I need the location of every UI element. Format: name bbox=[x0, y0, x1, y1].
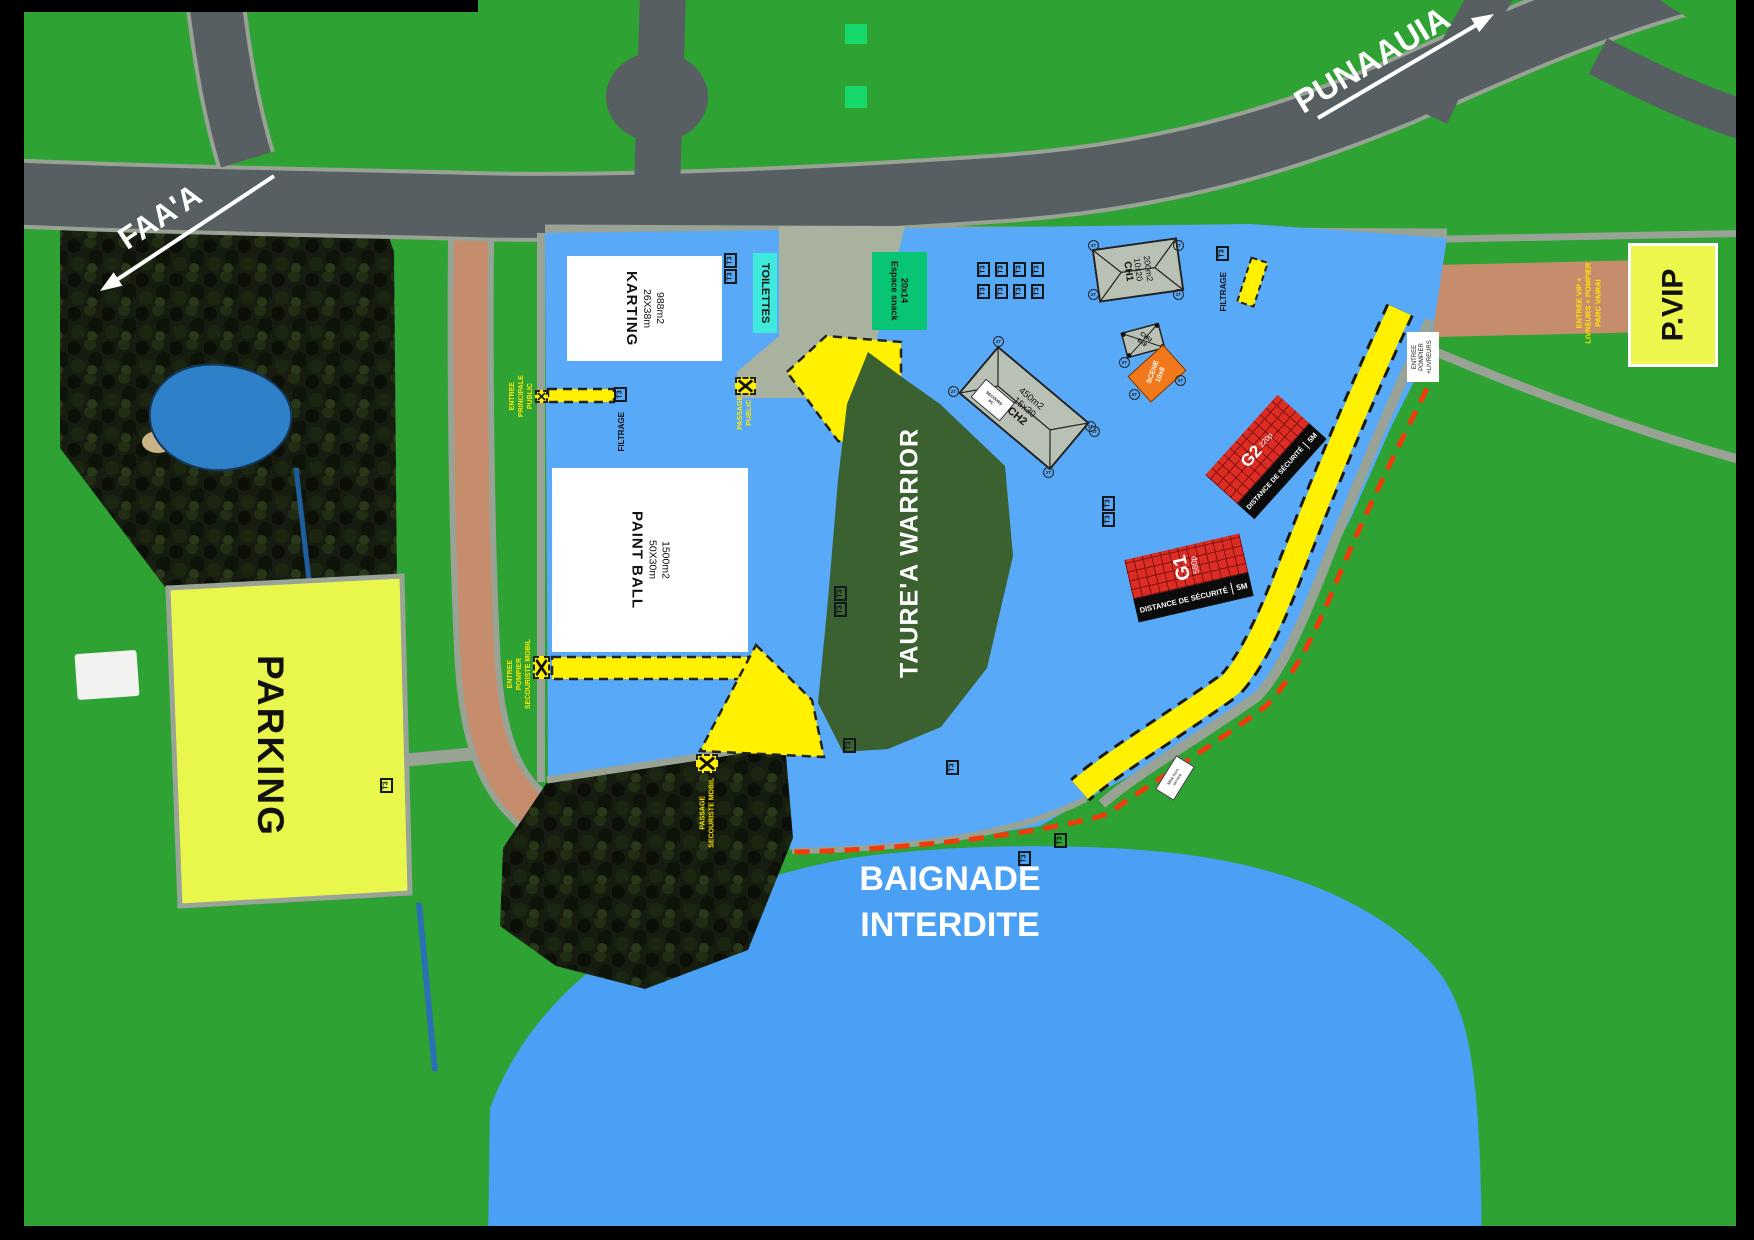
t3-marker: T3 bbox=[1013, 262, 1026, 277]
north-branch-road bbox=[214, 0, 246, 160]
no-swimming-label: BAIGNADE INTERDITE bbox=[859, 857, 1040, 949]
t2-corner-marker: 2T bbox=[1088, 240, 1099, 251]
g1-measure-line bbox=[1230, 583, 1234, 595]
vip-parking-area: P.VIP bbox=[1628, 243, 1718, 367]
t3-marker: T3 bbox=[995, 262, 1008, 277]
gate-passage-public bbox=[735, 377, 756, 395]
t3-marker: T3 bbox=[977, 262, 990, 277]
t3-marker: T3 bbox=[995, 284, 1008, 299]
sign-entree-pompier-livreurs: ENTREE POMPIER +LIVREURS bbox=[1407, 332, 1439, 382]
t3-marker: T3 bbox=[724, 253, 737, 268]
t3-marker: T3 bbox=[977, 284, 990, 299]
roundabout bbox=[606, 52, 708, 142]
toilets-area: TOILETTES bbox=[753, 253, 777, 333]
green-marker-2 bbox=[845, 86, 867, 108]
paintball-dims: 50X30m bbox=[647, 511, 659, 609]
no-swimming-line1: BAIGNADE bbox=[859, 857, 1040, 903]
gate-entree-principale bbox=[535, 390, 548, 403]
t2-corner-marker: 2T bbox=[1088, 289, 1099, 300]
t5-corner-marker: 5T bbox=[1129, 389, 1140, 400]
pond bbox=[150, 365, 291, 471]
building-white bbox=[74, 650, 139, 700]
t3-marker: T3 bbox=[614, 387, 627, 402]
t2-corner-marker: 2T bbox=[1173, 240, 1184, 251]
karting-area: KARTING 26X38m 988m2 bbox=[567, 256, 722, 361]
t3-marker: T3 bbox=[834, 586, 847, 601]
event-site-map: FAA'A PUNAAUIA KARTING 26X38m 988m2 PAIN… bbox=[0, 0, 1754, 1240]
parking-label: PARKING bbox=[249, 655, 291, 837]
toilets-label: TOILETTES bbox=[759, 263, 771, 323]
t3-marker: T3 bbox=[1216, 246, 1229, 261]
frame-right bbox=[1736, 0, 1754, 1240]
filtrage-corridor bbox=[548, 389, 614, 402]
karting-dims: 26X38m bbox=[641, 271, 653, 346]
no-swimming-line2: INTERDITE bbox=[859, 903, 1040, 949]
paintball-area: PAINT BALL 50X30m 1500m2 bbox=[552, 468, 748, 652]
t3-marker: T3 bbox=[843, 738, 856, 753]
t5-corner-marker: 5T bbox=[1175, 375, 1186, 386]
rescue-corridor bbox=[552, 657, 764, 679]
taurea-warrior-label: TAURE'A WARRIOR bbox=[896, 428, 925, 678]
t3-marker: T3 bbox=[724, 269, 737, 284]
t3-marker: T3 bbox=[380, 778, 393, 793]
vip-parking-label: P.VIP bbox=[1656, 269, 1690, 342]
paintball-surface: 1500m2 bbox=[660, 511, 672, 609]
gate-passage-secouriste bbox=[696, 754, 718, 773]
frame-top bbox=[0, 0, 478, 12]
frame-left bbox=[0, 0, 24, 1240]
t3-marker: T3 bbox=[1054, 833, 1067, 848]
t1-marker: 1T bbox=[1089, 426, 1100, 437]
t2-corner-marker: 2T bbox=[993, 336, 1004, 347]
t2-corner-marker: 2T bbox=[1173, 289, 1184, 300]
t3-marker: T3 bbox=[1013, 284, 1026, 299]
t3-marker: T3 bbox=[1018, 851, 1031, 866]
g2-capacity: 220p bbox=[1257, 431, 1275, 449]
t3-marker: T3 bbox=[946, 760, 959, 775]
t5-corner-marker: 5T bbox=[1119, 357, 1130, 368]
frame-bottom bbox=[0, 1226, 1754, 1240]
green-marker-1 bbox=[845, 24, 867, 44]
karting-name: KARTING bbox=[623, 271, 640, 346]
paintball-name: PAINT BALL bbox=[629, 511, 646, 609]
t3-marker: T3 bbox=[834, 602, 847, 617]
snack-area: Espace snack 20x14 bbox=[872, 252, 927, 330]
gate-entree-pompier-mobile bbox=[533, 656, 550, 679]
snack-dims: 20x14 bbox=[900, 261, 910, 321]
t2-corner-marker: 2T bbox=[1043, 467, 1054, 478]
t2-corner-marker: 2T bbox=[948, 386, 959, 397]
parking-area-label-wrap: PARKING bbox=[225, 608, 315, 883]
karting-surface: 988m2 bbox=[654, 271, 666, 346]
g2-distance: 5M bbox=[1306, 431, 1320, 445]
t3-marker: T3 bbox=[1102, 512, 1115, 527]
t3-marker: T3 bbox=[1031, 262, 1044, 277]
t3-marker: T3 bbox=[1031, 284, 1044, 299]
t3-marker: T3 bbox=[1102, 496, 1115, 511]
snack-name: Espace snack bbox=[890, 261, 900, 321]
g1-distance: 5M bbox=[1235, 581, 1248, 592]
